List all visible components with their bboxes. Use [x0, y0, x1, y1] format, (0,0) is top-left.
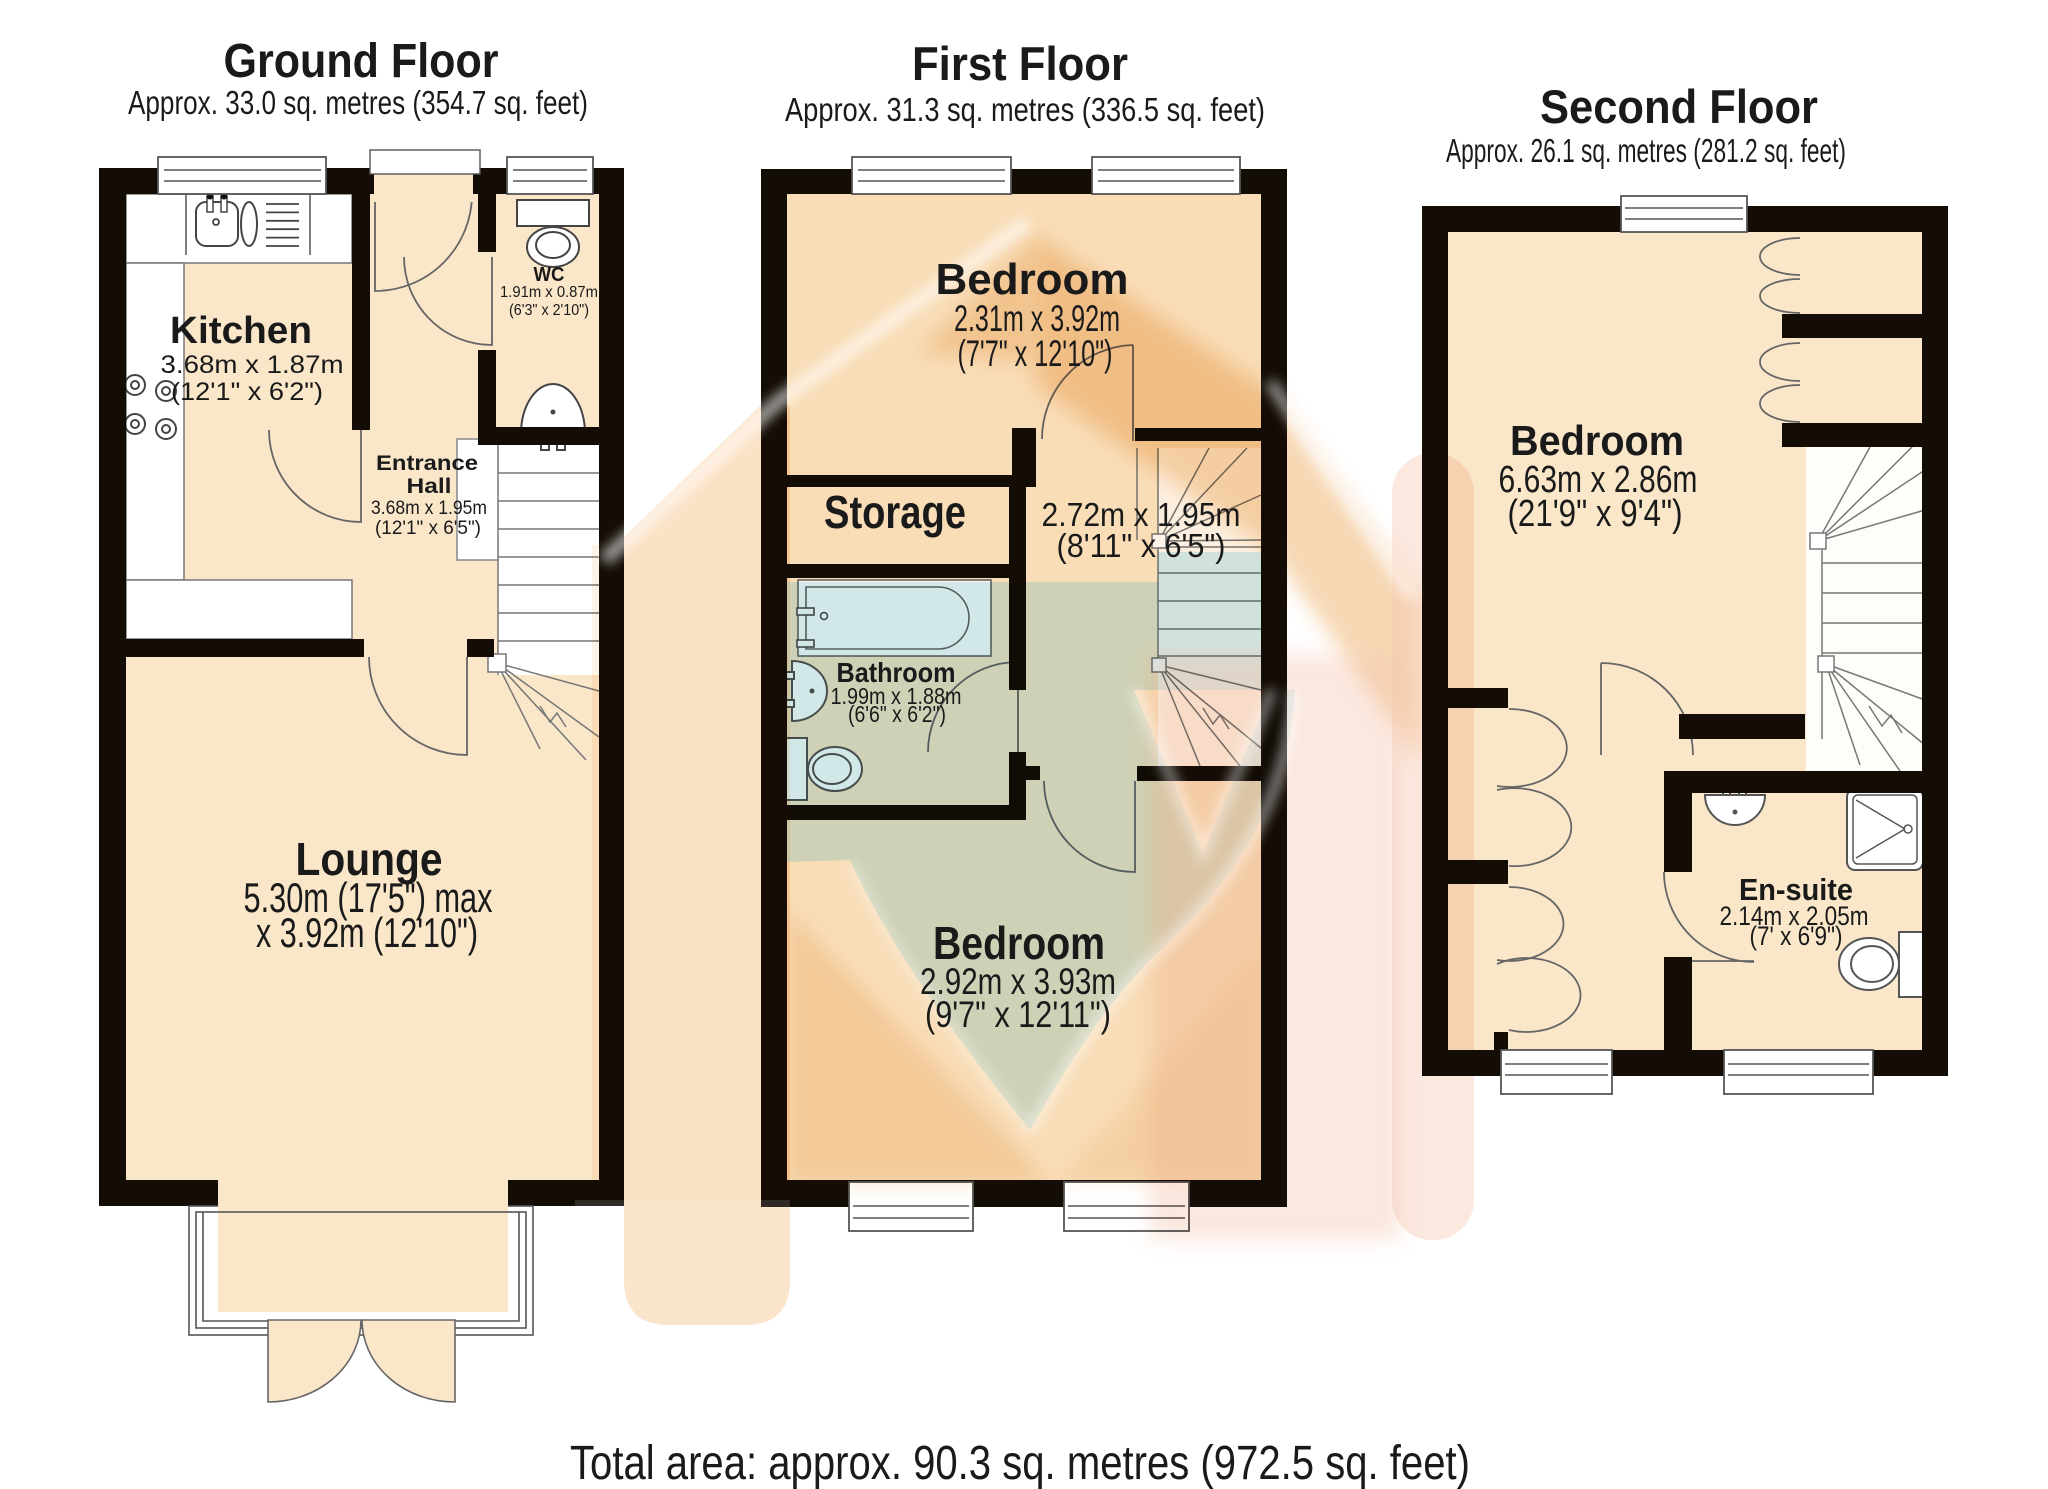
svg-text:(8'11" x 6'5"): (8'11" x 6'5")	[1057, 527, 1226, 564]
svg-text:Bedroom: Bedroom	[936, 255, 1129, 304]
svg-text:3.68m x 1.95m: 3.68m x 1.95m	[371, 498, 487, 519]
svg-text:(6'3" x 2'10"): (6'3" x 2'10")	[509, 302, 589, 319]
svg-text:(21'9" x 9'4"): (21'9" x 9'4")	[1508, 493, 1683, 535]
svg-text:First Floor: First Floor	[912, 37, 1128, 90]
svg-text:Ground Floor: Ground Floor	[224, 35, 499, 88]
svg-text:Entrance: Entrance	[376, 452, 478, 475]
svg-text:3.68m x 1.87m: 3.68m x 1.87m	[161, 351, 344, 379]
svg-text:x 3.92m (12'10"): x 3.92m (12'10")	[256, 909, 478, 956]
svg-text:WC: WC	[534, 264, 565, 286]
svg-text:Approx. 26.1 sq. metres (281.2: Approx. 26.1 sq. metres (281.2 sq. feet)	[1446, 132, 1846, 169]
svg-text:(6'6" x 6'2"): (6'6" x 6'2")	[848, 701, 946, 727]
svg-text:Approx. 33.0 sq. metres (354.7: Approx. 33.0 sq. metres (354.7 sq. feet)	[128, 84, 588, 121]
svg-text:Hall: Hall	[407, 475, 452, 498]
svg-text:Kitchen: Kitchen	[170, 310, 312, 352]
svg-text:Second Floor: Second Floor	[1540, 80, 1818, 133]
svg-text:(9'7" x 12'11"): (9'7" x 12'11")	[925, 994, 1111, 1035]
svg-text:Bedroom: Bedroom	[1510, 417, 1684, 464]
svg-text:(12'1" x 6'5"): (12'1" x 6'5")	[375, 518, 481, 539]
svg-text:(7'7" x 12'10"): (7'7" x 12'10")	[958, 333, 1113, 374]
svg-text:(12'1" x 6'2"): (12'1" x 6'2")	[171, 378, 323, 406]
svg-text:(7' x 6'9"): (7' x 6'9")	[1750, 921, 1843, 951]
svg-text:Storage: Storage	[824, 486, 966, 538]
svg-text:Approx. 31.3 sq. metres (336.5: Approx. 31.3 sq. metres (336.5 sq. feet)	[785, 91, 1265, 128]
svg-text:Total area: approx. 90.3 sq. m: Total area: approx. 90.3 sq. metres (972…	[570, 1437, 1470, 1489]
svg-text:1.91m x 0.87m: 1.91m x 0.87m	[500, 284, 598, 301]
